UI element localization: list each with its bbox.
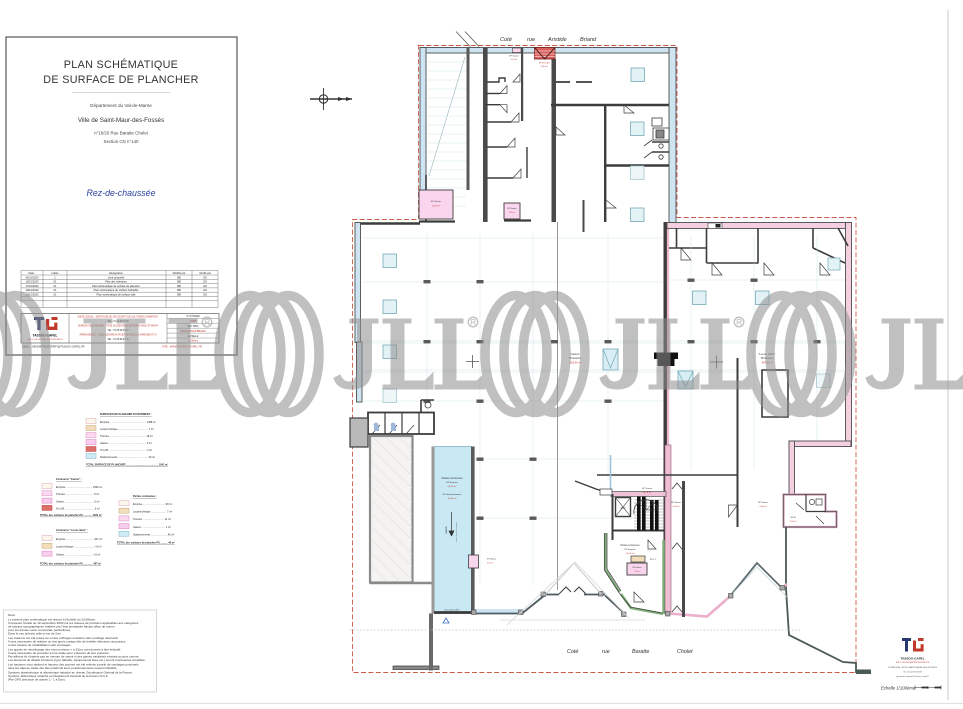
svg-text:SP Gaines: SP Gaines — [431, 201, 442, 203]
svg-text:06/11/2023: 06/11/2023 — [26, 275, 39, 279]
svg-text:Plan schématique de surface ha: Plan schématique de surface habitable — [94, 288, 139, 292]
svg-text:3,20 m²: 3,20 m² — [509, 211, 516, 214]
svg-text:vers le Sous-sol commun: vers le Sous-sol commun — [456, 522, 458, 542]
svg-text:WC A: WC A — [790, 516, 796, 519]
svg-text:GO: GO — [203, 280, 207, 284]
svg-text:SIEGE SOCIAL : 16TER RUE DU DO: SIEGE SOCIAL : 16TER RUE DU DOCTEUR FOUC… — [78, 316, 159, 319]
svg-text:1506,00 m²: 1506,00 m² — [569, 362, 581, 365]
svg-text:rue: rue — [527, 37, 535, 43]
svg-text:SP Trémie: SP Trémie — [642, 487, 653, 490]
svg-text:Stationnements ...............: Stationnements .........................… — [100, 456, 155, 459]
svg-text:Parties communes: Parties communes — [620, 544, 640, 547]
svg-text:BUREAU SECONDAIRE : 7 RUE VALD: BUREAU SECONDAIRE : 7 RUE VALDEGRAND DE … — [78, 325, 158, 328]
svg-text:et des travaux de réhabilitati: et des travaux de réhabilitation sont en… — [8, 643, 72, 647]
svg-text:Local technique ..............: Local technique ........................… — [100, 428, 154, 431]
svg-text:Trémies ......................: Trémies ................................… — [56, 493, 99, 496]
svg-text:0,60 m²: 0,60 m² — [760, 505, 767, 508]
svg-text:SP Gaines: SP Gaines — [671, 502, 681, 504]
svg-text:Emprise ......................: Emprise ................................… — [56, 486, 102, 489]
svg-text:SP Gaines: SP Gaines — [487, 559, 496, 561]
svg-text:n°16/20 Rue Baratte Cholet: n°16/20 Rue Baratte Cholet — [94, 131, 149, 136]
svg-text:Indice: Indice — [52, 271, 59, 275]
svg-text:Cholet: Cholet — [677, 649, 693, 655]
svg-text:Modifié par: Modifié par — [173, 271, 186, 275]
svg-text:Les éléments de détails intéri: Les éléments de détails intérieurs (type… — [8, 658, 146, 662]
svg-text:TOTAL SURFACE DE PLANCHER ....: TOTAL SURFACE DE PLANCHER ..............… — [86, 463, 168, 467]
svg-text:TOTAL des surfaces de plancher: TOTAL des surfaces de plancher P.0 .....… — [40, 513, 102, 517]
svg-text:Plan des Intérieurs: Plan des Intérieurs — [105, 280, 127, 284]
svg-text:Local technique ..............: Local technique ...................... 7… — [133, 511, 172, 514]
svg-text:Trémies ......................: Trémies ................................… — [100, 435, 153, 438]
svg-text:Plan schématique de surface de: Plan schématique de surface de plancher — [92, 284, 140, 288]
svg-text:10/12/2023: 10/12/2023 — [26, 280, 40, 284]
svg-text:50,00 m²: 50,00 m² — [448, 485, 457, 488]
svg-text:Département du Val-de-Marne: Département du Val-de-Marne — [90, 103, 152, 108]
svg-text:2,40 m²: 2,40 m² — [790, 520, 797, 523]
svg-text:SP Gaines: SP Gaines — [758, 502, 768, 504]
svg-text:SP Emprise: SP Emprise — [624, 548, 636, 551]
svg-text:Emprise ......................: Emprise ................................… — [56, 538, 102, 541]
svg-text:GO: GO — [203, 293, 207, 297]
svg-text:PLAN SCHÉMATIQUE: PLAN SCHÉMATIQUE — [64, 58, 178, 71]
svg-text:Coté: Coté — [500, 37, 512, 43]
svg-text:SP+L.T.: SP+L.T. — [650, 559, 657, 561]
svg-text:SP H<1,80: SP H<1,80 — [539, 62, 550, 65]
svg-text:BB: BB — [177, 288, 181, 292]
svg-text:BB: BB — [177, 293, 181, 297]
svg-text:10,00 m²: 10,00 m² — [626, 552, 635, 555]
svg-text:Local technique ..............: Local technique ........................… — [56, 546, 102, 549]
svg-text:TOTAL des surfaces de plancher: TOTAL des surfaces de plancher P.0 .....… — [40, 562, 101, 566]
svg-text:N° DOSSIER: N° DOSSIER — [186, 316, 200, 318]
svg-text:0,50 m²: 0,50 m² — [487, 562, 494, 565]
svg-text:Plan schématique de surface ut: Plan schématique de surface utile — [97, 293, 136, 297]
svg-text:(Par GPS précision de classe 1: (Par GPS précision de classe 1 - 1 à 5cm… — [8, 678, 66, 682]
svg-text:Gaines .......................: Gaines .................................… — [56, 500, 100, 503]
svg-text:BB: BB — [177, 280, 181, 284]
svg-text:Section CN n°140: Section CN n°140 — [104, 139, 140, 144]
svg-text:H<1,80 .......................: H<1,80 .................................… — [56, 508, 100, 511]
svg-text:Dans le cas présent celle-ci e: Dans le cas présent celle-ci est de 2cm. — [8, 632, 62, 636]
svg-text:Nota :: Nota : — [8, 613, 16, 617]
svg-text:Parties communes :: Parties communes : — [133, 495, 157, 498]
svg-text:Commerce "Casino" :: Commerce "Casino" : — [56, 478, 82, 481]
svg-text:1,20 m²: 1,20 m² — [634, 570, 641, 573]
svg-text:SP Emprise: SP Emprise — [446, 481, 458, 484]
svg-text:sans les dépose totale des fau: sans les dépose totale des faux plafonds… — [8, 666, 117, 670]
svg-text:Emprise ......................: Emprise ................................… — [100, 421, 156, 424]
svg-text:Stationnements ...............: Stationnements ....................... 4… — [133, 534, 174, 537]
svg-text:Gaines .......................: Gaines .................................… — [56, 553, 100, 556]
svg-text:Coté: Coté — [567, 649, 578, 655]
svg-text:Baratte: Baratte — [632, 649, 649, 655]
svg-text:Parties communes: Parties communes — [442, 477, 463, 480]
svg-text:0,25 m²: 0,25 m² — [511, 58, 518, 61]
svg-text:16TER RUE / 94100 SAINT-MAUR-D: 16TER RUE / 94100 SAINT-MAUR-DES-FOSSES — [888, 666, 937, 669]
svg-text:Echelle 1/100ème: Echelle 1/100ème — [881, 686, 916, 691]
svg-text:1,80 m²: 1,80 m² — [540, 65, 548, 68]
svg-text:TOTAL des surfaces de plancher: TOTAL des surfaces de plancher P.0 .....… — [117, 541, 175, 545]
svg-text:TASSOU-CAPEL: TASSOU-CAPEL — [900, 657, 924, 661]
svg-text:SP Gaines: SP Gaines — [507, 208, 516, 210]
svg-text:Gaines .......................: Gaines .................................… — [133, 526, 171, 529]
svg-text:10/12/2023: 10/12/2023 — [26, 288, 40, 292]
svg-text:Date :: Date : — [29, 271, 36, 275]
svg-text:GO: GO — [203, 288, 207, 292]
svg-text:BB: BB — [177, 284, 181, 288]
svg-text:Commerce "La vie claire" :: Commerce "La vie claire" : — [56, 529, 88, 532]
svg-text:SURFACES DE PLANCHER DU BATIME: SURFACES DE PLANCHER DU BATIMENT : — [100, 413, 152, 416]
svg-text:Rez-de-chaussée: Rez-de-chaussée — [87, 188, 156, 198]
svg-text:Emprise ......................: Emprise ................................… — [133, 503, 172, 506]
svg-text:Vérifié par: Vérifié par — [199, 271, 211, 275]
svg-text:Sous porte profilée: Sous porte profilée — [444, 609, 459, 612]
svg-text:Désignation: Désignation — [109, 271, 123, 275]
svg-text:DE SURFACE DE PLANCHER: DE SURFACE DE PLANCHER — [43, 74, 198, 86]
svg-text:Gaines .......................: Gaines .................................… — [100, 442, 152, 445]
svg-text:Levé propriété: Levé propriété — [108, 275, 125, 279]
svg-text:Tel. 01.42.83.19.09: Tel. 01.42.83.19.09 — [903, 672, 922, 674]
svg-text:"Casino": "Casino" — [570, 352, 581, 356]
svg-text:H<1,80 .......................: H<1,80 .................................… — [100, 449, 152, 452]
svg-text:17/01/2024: 17/01/2024 — [26, 284, 40, 288]
svg-text:rue: rue — [602, 649, 610, 655]
svg-text:RAMPE: RAMPE — [445, 526, 448, 534]
svg-text:0,90 m²: 0,90 m² — [673, 505, 680, 508]
svg-text:GO: GO — [203, 284, 207, 288]
svg-text:ASC: ASC — [621, 507, 626, 510]
svg-text:BB: BB — [177, 275, 181, 279]
svg-text:SP Gaines: SP Gaines — [632, 567, 641, 569]
svg-text:SP Gaines: SP Gaines — [509, 56, 519, 58]
svg-text:40,00 m²: 40,00 m² — [448, 497, 457, 500]
svg-text:6,50 m²: 6,50 m² — [432, 205, 440, 208]
svg-text:10,70 m²: 10,70 m² — [643, 491, 652, 494]
svg-text:Trémies ......................: Trémies ............................... … — [133, 518, 171, 521]
svg-text:Briand: Briand — [580, 37, 597, 43]
svg-text:SP Stationnements: SP Stationnements — [443, 493, 463, 496]
svg-text:GO: GO — [203, 275, 207, 279]
svg-text:S.A.S. DE GEOMETRES-EXPERTS: S.A.S. DE GEOMETRES-EXPERTS — [896, 661, 930, 664]
svg-text:Aristide: Aristide — [547, 37, 567, 43]
svg-text:geometre-expert@tassou-capel.f: geometre-expert@tassou-capel.fr — [896, 675, 929, 678]
svg-text:Ville de Saint-Maur-des-Fossés: Ville de Saint-Maur-des-Fossés — [78, 117, 164, 124]
